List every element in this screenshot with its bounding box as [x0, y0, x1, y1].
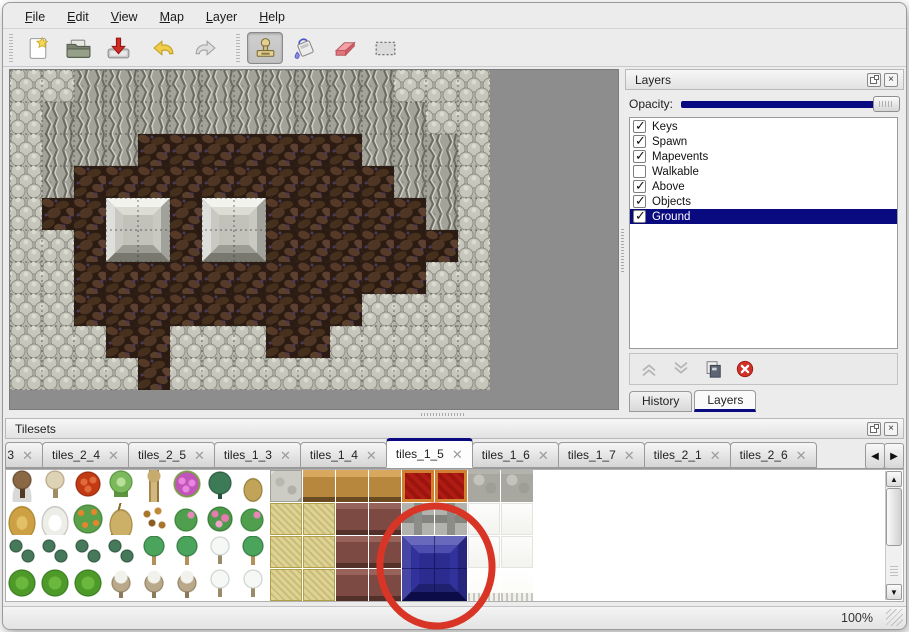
tileset-tab-label: tiles_2_1 — [654, 448, 702, 462]
toolbar-handle[interactable] — [7, 34, 14, 62]
palette-tile-deadSnow[interactable] — [138, 569, 170, 601]
palette-tile-bushGreen[interactable] — [72, 569, 104, 601]
palette-scrollbar[interactable]: ▲ ▼ — [885, 471, 902, 600]
menu-map[interactable]: Map — [150, 7, 194, 27]
dock-tab-history[interactable]: History — [629, 391, 692, 412]
layers-float-button[interactable] — [867, 73, 881, 87]
close-icon: × — [888, 75, 894, 85]
layer-visibility-checkbox[interactable] — [633, 195, 646, 208]
undo-icon — [151, 35, 178, 62]
tileset-tab-label: tiles_1_5 — [396, 447, 444, 461]
layers-panel: Layers × Opacity: KeysSpawnMapeventsWalk… — [625, 69, 904, 410]
tileset-tab-tiles_2_6[interactable]: tiles_2_6✕ — [730, 442, 817, 468]
tileset-tab-label: tiles_1_3 — [224, 448, 272, 462]
palette-tile-matTan[interactable] — [270, 503, 302, 535]
map-viewport[interactable] — [9, 69, 619, 410]
stamp-tool-button[interactable] — [247, 32, 283, 64]
layer-row-above[interactable]: Above — [630, 179, 897, 194]
tileset-tab-label: tiles_2_4 — [52, 448, 100, 462]
tab-close-icon[interactable]: ✕ — [710, 449, 721, 462]
menu-help[interactable]: Help — [249, 7, 295, 27]
tileset-tab-tiles_2_4[interactable]: tiles_2_4✕ — [42, 442, 129, 468]
scroll-down-icon[interactable]: ▼ — [886, 584, 902, 600]
layer-name-label: Mapevents — [652, 151, 708, 163]
tileset-tab-3[interactable]: 3✕ — [5, 442, 43, 468]
palette-tile-matTan[interactable] — [303, 569, 335, 601]
select-icon — [372, 35, 399, 62]
palette-tile-palm[interactable] — [138, 536, 170, 568]
palette-tile-tileWhite[interactable] — [501, 536, 533, 568]
palette-tile-grassDry[interactable] — [105, 503, 137, 535]
palette-tile-bushGreen[interactable] — [39, 569, 71, 601]
palette-tile-lilyPad[interactable] — [237, 503, 269, 535]
palette-tile-tileWhite[interactable] — [501, 503, 533, 535]
redo-button[interactable] — [186, 32, 222, 64]
tileset-tab-tiles_1_5[interactable]: tiles_1_5✕ — [386, 438, 473, 468]
layer-row-keys[interactable]: Keys — [630, 119, 897, 134]
palette-tile-roseBush[interactable] — [204, 503, 236, 535]
layer-row-walkable[interactable]: Walkable — [630, 164, 897, 179]
float-icon — [870, 75, 879, 84]
palette-tile-beamGray[interactable] — [402, 503, 434, 535]
palette-tile-carpetRed[interactable] — [402, 470, 434, 502]
palette-tile-bushSmall[interactable] — [105, 536, 137, 568]
open-file-button[interactable] — [60, 32, 96, 64]
tab-close-icon[interactable]: ✕ — [452, 448, 463, 461]
layer-row-ground[interactable]: Ground — [630, 209, 897, 224]
layer-buttons-row — [629, 353, 898, 385]
tileset-tab-tiles_1_7[interactable]: tiles_1_7✕ — [558, 442, 645, 468]
tab-close-icon[interactable]: ✕ — [366, 449, 377, 462]
tileset-tab-label: tiles_2_5 — [138, 448, 186, 462]
tab-scroll-right-button[interactable]: ▶ — [884, 443, 904, 469]
palette-tile-matTan[interactable] — [270, 536, 302, 568]
app-window: FileEditViewMapLayerHelp Layers × Opacit… — [2, 2, 907, 630]
scrollbar-grip — [890, 566, 898, 576]
eraser-tool-button[interactable] — [327, 32, 363, 64]
layer-visibility-checkbox[interactable] — [633, 120, 646, 133]
tileset-tab-scroll: ◀ ▶ — [866, 443, 904, 469]
palette-tile-snowTree[interactable] — [237, 569, 269, 601]
move-layer-down-button[interactable] — [670, 358, 692, 380]
palette-tile-tableBrown[interactable] — [369, 503, 401, 535]
palette-tile-treeDead[interactable] — [39, 470, 71, 502]
eraser-icon — [332, 35, 359, 62]
tab-scroll-left-button[interactable]: ◀ — [865, 443, 885, 469]
palette-tile-bushSmall[interactable] — [72, 536, 104, 568]
tab-close-icon[interactable]: ✕ — [538, 449, 549, 462]
palette-tile-flowerRed[interactable] — [72, 470, 104, 502]
layer-visibility-checkbox[interactable] — [633, 135, 646, 148]
resize-grip[interactable] — [886, 609, 903, 626]
palette-tile-deadSnow[interactable] — [105, 569, 137, 601]
tile-palette-area: ▲ ▼ — [5, 469, 904, 602]
status-bar: 100% — [3, 606, 906, 629]
opacity-slider-handle[interactable] — [873, 96, 900, 112]
zoom-level-label: 100% — [841, 611, 873, 625]
open-icon — [65, 35, 92, 62]
palette-tile-bushSmall[interactable] — [39, 536, 71, 568]
tileset-tab-label: tiles_1_7 — [568, 448, 616, 462]
horizontal-splitter[interactable] — [3, 410, 906, 418]
tab-close-icon[interactable]: ✕ — [796, 449, 807, 462]
palette-tile-tableBrown[interactable] — [369, 536, 401, 568]
duplicate-layer-button[interactable] — [702, 358, 724, 380]
screenshot-stage: FileEditViewMapLayerHelp Layers × Opacit… — [0, 0, 909, 632]
close-icon: × — [888, 424, 894, 434]
palette-tile-stoneGray[interactable] — [468, 470, 500, 502]
layer-name-label: Ground — [652, 211, 690, 223]
menu-layer[interactable]: Layer — [196, 7, 247, 27]
palette-tile-tileWhite[interactable] — [468, 503, 500, 535]
palette-tile-tableBrown[interactable] — [369, 569, 401, 601]
palette-tile-snowTree[interactable] — [204, 569, 236, 601]
save-icon — [105, 35, 132, 62]
tileset-tab-label: 3 — [7, 448, 14, 462]
opacity-slider-track — [681, 101, 900, 108]
palette-tile-snowMound[interactable] — [39, 503, 71, 535]
palette-tile-tableBrown[interactable] — [336, 503, 368, 535]
palette-tile-matTan[interactable] — [270, 569, 302, 601]
layer-visibility-checkbox[interactable] — [633, 150, 646, 163]
select-tool-button[interactable] — [367, 32, 403, 64]
palette-tile-flowerPink[interactable] — [171, 470, 203, 502]
tileset-tab-tiles_2_1[interactable]: tiles_2_1✕ — [644, 442, 731, 468]
layers-panel-title: Layers — [635, 73, 864, 87]
layer-name-label: Keys — [652, 121, 678, 133]
palette-tile-plantDark[interactable] — [204, 470, 236, 502]
tab-close-icon[interactable]: ✕ — [280, 449, 291, 462]
opacity-slider[interactable] — [681, 96, 900, 112]
redo-icon — [191, 35, 218, 62]
palette-tile-tileWhite[interactable] — [468, 536, 500, 568]
layer-name-label: Walkable — [652, 166, 699, 178]
palette-tile-matTan[interactable] — [303, 503, 335, 535]
save-file-button[interactable] — [100, 32, 136, 64]
palette-tile-tableTan[interactable] — [369, 470, 401, 502]
dock-tab-layers[interactable]: Layers — [694, 390, 756, 412]
layer-visibility-checkbox[interactable] — [633, 180, 646, 193]
tab-close-icon[interactable]: ✕ — [108, 449, 119, 462]
palette-tile-snowTree[interactable] — [204, 536, 236, 568]
move-layer-up-button[interactable] — [638, 358, 660, 380]
tilesets-panel-title: Tilesets — [15, 422, 864, 436]
palette-tile-carpetRed[interactable] — [435, 470, 467, 502]
tab-close-icon[interactable]: ✕ — [624, 449, 635, 462]
menu-bar: FileEditViewMapLayerHelp — [3, 6, 906, 29]
tilesets-panel-titlebar: Tilesets × — [5, 418, 904, 439]
palette-tile-tileWhiteF[interactable] — [501, 569, 533, 601]
layer-name-label: Objects — [652, 196, 691, 208]
palette-tile-stoneTile[interactable] — [270, 470, 302, 502]
layer-name-label: Spawn — [652, 136, 687, 148]
new-file-button[interactable] — [20, 32, 56, 64]
palette-tile-tableTan[interactable] — [336, 470, 368, 502]
new-icon — [25, 35, 52, 62]
layers-close-button[interactable]: × — [884, 73, 898, 87]
layer-row-objects[interactable]: Objects — [630, 194, 897, 209]
layer-row-mapevents[interactable]: Mapevents — [630, 149, 897, 164]
palette-tile-treeBrown[interactable] — [6, 470, 38, 502]
palette-tile-tableBrown[interactable] — [336, 536, 368, 568]
palette-tile-hay[interactable] — [6, 503, 38, 535]
scroll-up-icon[interactable]: ▲ — [886, 471, 902, 487]
tileset-tab-label: tiles_2_6 — [740, 448, 788, 462]
opacity-row: Opacity: — [629, 95, 900, 113]
menu-edit[interactable]: Edit — [57, 7, 99, 27]
palette-tile-flowerPatch[interactable] — [72, 503, 104, 535]
dock-tab-bar: HistoryLayers — [629, 389, 758, 412]
palette-tile-tableBrown[interactable] — [336, 569, 368, 601]
undo-button[interactable] — [146, 32, 182, 64]
palette-tile-palm[interactable] — [171, 536, 203, 568]
palette-scrollbar-thumb[interactable] — [886, 488, 902, 546]
layer-visibility-checkbox[interactable] — [633, 165, 646, 178]
fill-icon — [292, 35, 319, 62]
delete-layer-button[interactable] — [734, 358, 756, 380]
palette-tile-plantDry[interactable] — [237, 470, 269, 502]
opacity-label: Opacity: — [629, 97, 681, 111]
float-icon — [870, 424, 879, 433]
menu-file[interactable]: File — [15, 7, 55, 27]
tilesets-panel: Tilesets × 3✕tiles_2_4✕tiles_2_5✕tiles_1… — [5, 418, 904, 606]
palette-tile-stump[interactable] — [105, 470, 137, 502]
tileset-tab-bar: 3✕tiles_2_4✕tiles_2_5✕tiles_1_3✕tiles_1_… — [5, 439, 904, 469]
tab-close-icon[interactable]: ✕ — [22, 449, 33, 462]
layer-name-label: Above — [652, 181, 685, 193]
palette-tile-bushSmall[interactable] — [6, 536, 38, 568]
palette-tile-bushGreen[interactable] — [6, 569, 38, 601]
tileset-tab-tiles_2_5[interactable]: tiles_2_5✕ — [128, 442, 215, 468]
tab-close-icon[interactable]: ✕ — [194, 449, 205, 462]
layers-panel-titlebar: Layers × — [625, 69, 904, 90]
palette-tile-beamGray[interactable] — [435, 503, 467, 535]
fill-tool-button[interactable] — [287, 32, 323, 64]
palette-tile-trunk[interactable] — [138, 470, 170, 502]
palette-tile-deadSnow[interactable] — [171, 569, 203, 601]
layer-visibility-checkbox[interactable] — [633, 210, 646, 223]
palette-tile-palm[interactable] — [237, 536, 269, 568]
tileset-tab-tiles_1_4[interactable]: tiles_1_4✕ — [300, 442, 387, 468]
palette-tile-lilyPad[interactable] — [171, 503, 203, 535]
menu-view[interactable]: View — [101, 7, 148, 27]
tileset-tab-label: tiles_1_6 — [482, 448, 530, 462]
layer-list: KeysSpawnMapeventsWalkableAboveObjectsGr… — [629, 117, 898, 349]
palette-tile-stoneGray[interactable] — [501, 470, 533, 502]
palette-tile-tableTan[interactable] — [303, 470, 335, 502]
palette-tile-tileWhiteF[interactable] — [468, 569, 500, 601]
selected-blue-tile[interactable] — [402, 536, 467, 601]
tilesets-close-button[interactable]: × — [884, 422, 898, 436]
palette-tile-leaves[interactable] — [138, 503, 170, 535]
toolbar-handle[interactable] — [234, 34, 241, 62]
tilesets-float-button[interactable] — [867, 422, 881, 436]
palette-tile-matTan[interactable] — [303, 536, 335, 568]
stamp-icon — [252, 35, 279, 62]
tileset-tab-tiles_1_6[interactable]: tiles_1_6✕ — [472, 442, 559, 468]
tileset-tab-tiles_1_3[interactable]: tiles_1_3✕ — [214, 442, 301, 468]
toolbar — [3, 30, 906, 67]
tileset-tab-label: tiles_1_4 — [310, 448, 358, 462]
layer-row-spawn[interactable]: Spawn — [630, 134, 897, 149]
